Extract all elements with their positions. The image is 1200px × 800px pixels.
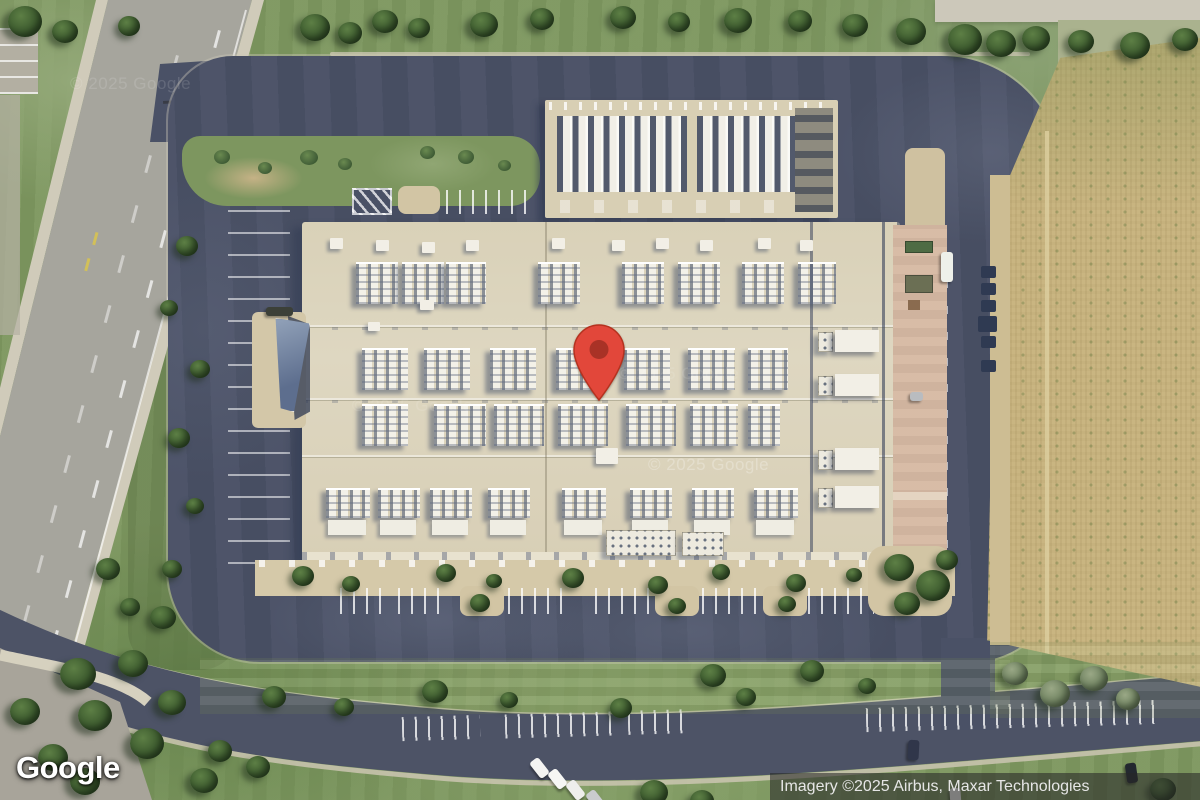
roof-vent — [758, 238, 771, 249]
tree — [894, 592, 920, 615]
dirt-strip — [990, 175, 1010, 645]
tree — [788, 10, 812, 32]
tree — [1116, 688, 1140, 710]
tree — [168, 428, 190, 448]
parking-stall-lines — [702, 588, 764, 614]
tree — [648, 576, 668, 594]
tree — [936, 550, 958, 570]
parked-truck — [941, 252, 953, 282]
parking-stall-lines — [505, 711, 614, 738]
curb-line — [330, 52, 1030, 56]
tree — [846, 568, 862, 582]
tree — [562, 568, 584, 588]
storage-bin — [981, 336, 996, 348]
tree — [858, 678, 876, 694]
tree — [8, 6, 42, 37]
tree — [78, 700, 112, 731]
tree — [712, 564, 730, 580]
rooftop-hvac-cluster — [748, 348, 788, 390]
storage-bin — [981, 266, 996, 278]
roof-vent — [656, 238, 669, 249]
tree — [208, 740, 232, 762]
field-track — [1045, 131, 1049, 700]
storage-bin — [981, 300, 996, 312]
roof-vent — [330, 238, 343, 249]
tree — [884, 554, 914, 581]
bush — [498, 160, 511, 171]
loading-dock-trailers — [557, 116, 687, 192]
tree — [118, 650, 148, 677]
roof-vent — [596, 448, 618, 464]
tree — [338, 22, 362, 44]
storage-container — [905, 241, 933, 253]
rooftop-hvac-cluster — [562, 488, 606, 518]
tree — [162, 560, 182, 578]
tree — [436, 564, 456, 582]
tree — [408, 18, 430, 38]
roof-vent — [552, 238, 565, 249]
rooftop-hvac-cluster — [626, 404, 676, 446]
rooftop-hvac-cluster — [402, 262, 444, 304]
tree — [1002, 662, 1028, 685]
roof-vent — [612, 240, 625, 251]
tree — [52, 20, 78, 43]
curb-dashes — [259, 560, 952, 567]
tree — [986, 30, 1016, 57]
roof-vent — [700, 240, 713, 251]
tree — [1040, 680, 1070, 707]
equipment-mat — [908, 300, 920, 310]
parking-stall-lines — [508, 588, 568, 614]
parking-stall-lines — [402, 715, 481, 741]
air-handler-box — [818, 376, 833, 396]
tree — [150, 606, 176, 629]
tree — [778, 596, 796, 612]
rooftop-hvac-cluster — [430, 488, 472, 518]
rooftop-hvac-cluster — [558, 404, 608, 446]
map-pin-body[interactable] — [574, 325, 624, 400]
tree — [186, 498, 204, 514]
roof-vent — [376, 240, 389, 251]
rooftop-hvac-cluster — [678, 262, 720, 304]
parking-stall-lines — [340, 588, 392, 614]
air-handler-box — [818, 332, 833, 352]
cooling-unit-row — [682, 532, 724, 556]
roof-vent — [368, 322, 380, 331]
tree — [176, 236, 198, 256]
tree — [190, 768, 218, 793]
rooftop-hvac-cluster — [538, 262, 580, 304]
roof-vent — [422, 242, 435, 253]
tree — [160, 300, 178, 316]
tree — [120, 598, 140, 616]
tree — [342, 576, 360, 592]
tree — [916, 570, 950, 601]
air-handler-unit — [835, 374, 879, 396]
rooftop-hvac-cluster — [362, 348, 408, 390]
crosswalk — [893, 492, 947, 500]
google-logo-link[interactable]: Google — [16, 750, 120, 786]
tree — [736, 688, 756, 706]
tree — [118, 16, 140, 36]
tree — [190, 360, 210, 378]
dock-staging — [560, 200, 790, 213]
tree — [610, 698, 632, 718]
storage-bin — [981, 360, 996, 372]
tree — [262, 686, 286, 708]
roof-vent — [466, 240, 479, 251]
parking-stub — [0, 28, 38, 94]
air-handler-unit — [835, 448, 879, 470]
tree — [372, 10, 398, 33]
rooftop-hvac-cluster — [748, 404, 780, 446]
tree — [158, 690, 186, 715]
rooftop-hvac-cap — [328, 520, 366, 535]
bush — [258, 162, 272, 174]
roof-vent — [800, 240, 813, 251]
rooftop-hvac-cluster — [692, 488, 734, 518]
rooftop-hvac-cluster — [326, 488, 370, 518]
tree — [60, 658, 96, 690]
tree — [1068, 30, 1094, 53]
bush — [458, 150, 474, 164]
no-parking-hatch — [352, 188, 392, 215]
tree — [300, 14, 330, 41]
rooftop-hvac-cluster — [424, 348, 470, 390]
rooftop-hvac-cluster — [622, 262, 664, 304]
tree — [786, 574, 806, 592]
bush — [300, 150, 318, 165]
rooftop-equipment — [795, 108, 833, 212]
parking-stall-lines — [595, 588, 653, 614]
tree — [948, 24, 982, 55]
tree — [292, 566, 314, 586]
roof-joint — [882, 222, 885, 560]
loading-dock-building — [545, 100, 838, 218]
tree — [334, 698, 354, 716]
rooftop-hvac-cluster — [630, 488, 672, 518]
tree — [640, 780, 668, 800]
rooftop-hvac-cap — [490, 520, 526, 535]
parking-stall-lines — [398, 588, 450, 614]
rooftop-hvac-cluster — [488, 488, 530, 518]
tree — [422, 680, 448, 703]
tree — [10, 698, 40, 725]
tree — [500, 692, 518, 708]
air-handler-box — [818, 488, 833, 508]
tree — [700, 664, 726, 687]
rooftop-hvac-cluster — [742, 262, 784, 304]
air-handler-unit — [835, 486, 879, 508]
cooling-unit-row — [606, 530, 676, 556]
tree — [246, 756, 270, 778]
loading-dock-trailers — [697, 116, 795, 192]
dock-doors — [549, 102, 830, 110]
tree — [1120, 32, 1150, 59]
air-handler-box — [818, 450, 833, 470]
rooftop-hvac-cluster — [690, 404, 738, 446]
tree — [668, 12, 690, 32]
rooftop-hvac-cluster — [798, 262, 836, 304]
tree — [470, 12, 498, 37]
mowed-lawn — [200, 658, 1010, 714]
tree — [668, 598, 686, 614]
tree — [470, 594, 490, 612]
tree — [130, 728, 164, 759]
storage-bin — [981, 283, 996, 295]
parking-stall-lines — [446, 190, 536, 214]
tree — [724, 8, 752, 33]
map-viewport[interactable]: © 2025 Google © 2025 Google © 2025 Googl… — [0, 0, 1200, 800]
rooftop-hvac-cluster — [446, 262, 486, 304]
roof-vent — [420, 300, 434, 310]
parked-car — [910, 392, 923, 401]
map-pin[interactable] — [573, 324, 625, 402]
rooftop-hvac-cluster — [378, 488, 420, 518]
rooftop-hvac-cap — [756, 520, 794, 535]
tree — [1080, 666, 1108, 691]
tree — [896, 18, 926, 45]
tree — [800, 660, 824, 682]
tree — [610, 6, 636, 29]
tree-island — [398, 186, 440, 214]
bush — [214, 150, 230, 164]
google-watermark: © 2025 Google — [618, 364, 739, 384]
air-handler-unit — [835, 330, 879, 352]
pavement-strip — [0, 95, 20, 335]
tree — [96, 558, 120, 580]
rooftop-hvac-cap — [380, 520, 416, 535]
storage-bin — [978, 316, 997, 332]
rooftop-hvac-cluster — [494, 404, 544, 446]
rooftop-hvac-cap — [432, 520, 468, 535]
tree — [1022, 26, 1050, 51]
rooftop-hvac-cluster — [356, 262, 398, 304]
tree — [486, 574, 502, 588]
rooftop-hvac-cluster — [754, 488, 798, 518]
map-pin-hole — [590, 340, 609, 359]
bush — [338, 158, 352, 170]
bush — [420, 146, 435, 159]
tree — [842, 14, 868, 37]
parked-car — [266, 307, 293, 316]
attribution-text: Imagery ©2025 Airbus, Maxar Technologies — [770, 773, 1200, 800]
tree — [1172, 28, 1198, 51]
google-watermark: © 2025 Google — [70, 74, 191, 94]
parking-stall-lines — [808, 588, 874, 614]
parked-car — [907, 740, 919, 761]
google-watermark: © 2025 Google — [648, 455, 769, 475]
parked-truck — [905, 275, 933, 293]
google-watermark: © 2025 Google — [352, 396, 473, 416]
rooftop-hvac-cap — [564, 520, 602, 535]
tree — [530, 8, 554, 30]
rooftop-hvac-cluster — [490, 348, 536, 390]
